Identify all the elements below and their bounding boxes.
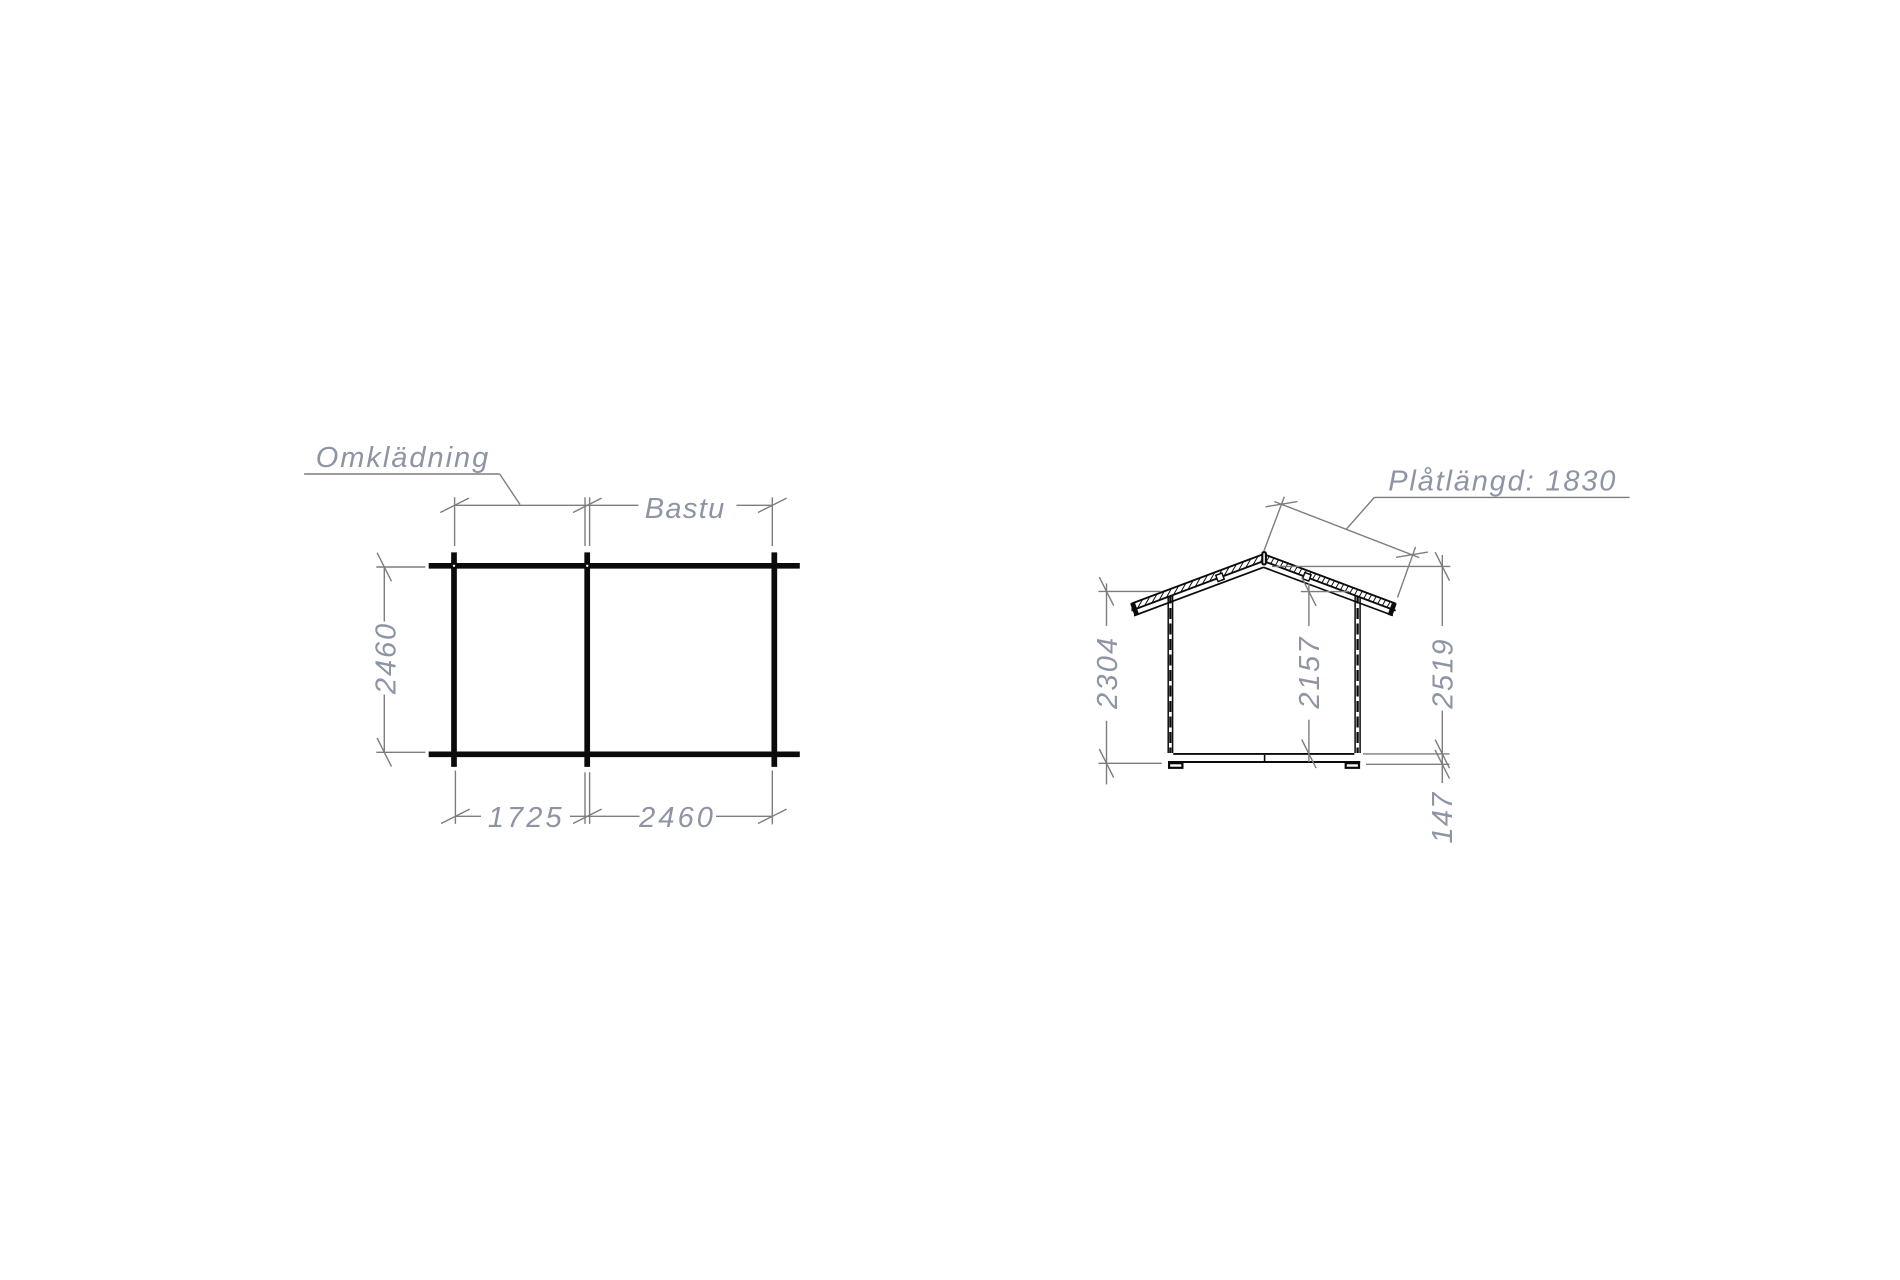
svg-text:2157: 2157 [1294,635,1326,709]
svg-text:2460: 2460 [370,622,402,695]
svg-text:2304: 2304 [1092,636,1124,710]
svg-text:Bastu: Bastu [645,493,726,525]
svg-text:147: 147 [1427,791,1459,844]
svg-text:Omklädning: Omklädning [316,442,491,474]
svg-text:Plåtlängd: 1830: Plåtlängd: 1830 [1388,466,1617,498]
svg-text:1725: 1725 [488,802,565,834]
svg-text:2519: 2519 [1428,638,1460,710]
svg-text:2460: 2460 [638,802,716,834]
